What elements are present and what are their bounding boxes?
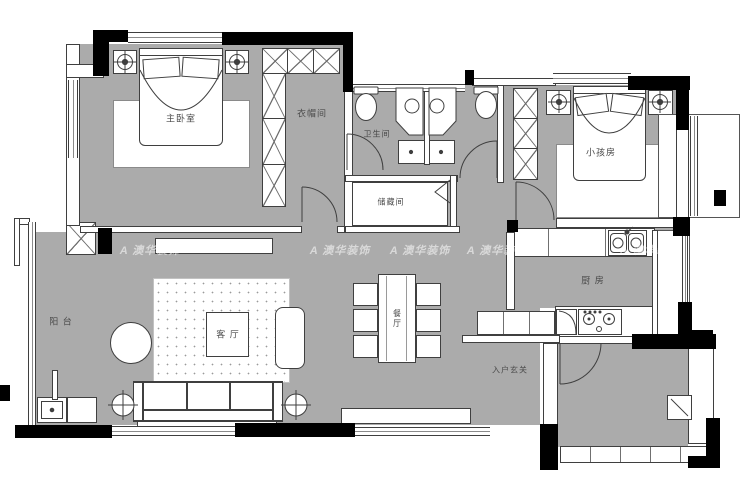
wall-black [685, 330, 713, 341]
wall [80, 226, 302, 233]
nightstand [113, 50, 137, 74]
room-label-cloakroom: 衣帽间 [297, 107, 327, 120]
window [553, 73, 631, 84]
room-label-dining: 餐厅 [392, 309, 403, 329]
wall [424, 85, 430, 165]
platform-window [690, 116, 698, 216]
wall-black [465, 70, 474, 85]
wardrobe-cell [287, 48, 314, 74]
nightstand [225, 50, 249, 74]
wall-black [714, 190, 726, 206]
sofa-cushion [230, 382, 273, 410]
window [352, 84, 465, 92]
room-label-bathroom: 卫生间 [364, 129, 391, 140]
wall [506, 232, 515, 310]
wall [462, 335, 560, 343]
wardrobe-cell [262, 73, 286, 119]
bed-headboard [139, 48, 223, 56]
table-line [386, 276, 387, 361]
cabinet-divider [529, 312, 530, 334]
table-line [406, 276, 407, 361]
cabinet-divider [680, 447, 681, 462]
corner-cabinet [556, 309, 577, 335]
dining-chair [416, 309, 441, 332]
wall [543, 343, 558, 428]
balcony-outer-wall [28, 222, 36, 428]
wall [472, 78, 556, 86]
wall-black [0, 385, 10, 401]
dining-chair [353, 283, 378, 306]
wardrobe-cell [313, 48, 340, 74]
floor-plan: 主卧室 衣帽间 卫生间 储藏间 小孩房 厨 房 餐厅 客 厅 阳 台 入户玄关 … [0, 0, 750, 500]
sofa-cushion [143, 382, 187, 410]
wardrobe-cell [513, 148, 538, 180]
wall [14, 218, 20, 266]
wall-black [93, 30, 128, 42]
window [68, 80, 78, 158]
window [128, 32, 222, 43]
dining-chair [416, 283, 441, 306]
counter-divider [605, 229, 606, 256]
sofa-cushion [187, 382, 230, 410]
shower-tray [428, 140, 455, 164]
room-label-storage: 储藏间 [378, 197, 405, 208]
window [355, 427, 490, 436]
hall-cabinet-row [477, 311, 555, 335]
wall-black [98, 228, 112, 254]
dining-chair [353, 335, 378, 358]
room-label-entry: 入户玄关 [492, 365, 528, 376]
wall-black [15, 425, 112, 438]
armchair [275, 307, 305, 369]
wall-black [688, 456, 720, 468]
sofa-back [143, 410, 273, 421]
cabinet-divider [650, 447, 651, 462]
room-label-master-bedroom: 主卧室 [166, 112, 196, 125]
wall [497, 85, 504, 183]
pillow [181, 57, 219, 80]
wardrobe-cell [262, 118, 286, 165]
wall [345, 226, 460, 233]
dining-chair [353, 309, 378, 332]
balcony-door-frame [52, 370, 58, 400]
counter-divider [548, 229, 549, 256]
window [110, 426, 235, 436]
wall-black [507, 220, 518, 232]
wall-black [673, 217, 690, 236]
wardrobe-cell [513, 118, 538, 149]
wall-black [628, 76, 690, 90]
wall-black [343, 44, 353, 92]
cabinet-divider [503, 312, 504, 334]
wall-black [676, 90, 689, 130]
sofa-arm [273, 382, 283, 421]
wardrobe-cell [262, 48, 288, 74]
window-seat [341, 408, 471, 424]
room-label-balcony: 阳 台 [49, 315, 73, 328]
pillow [142, 57, 180, 80]
nightstand [648, 90, 673, 115]
wall [556, 218, 676, 228]
wall-black [235, 423, 355, 437]
sink-basin [628, 233, 644, 253]
room-label-living: 客 厅 [216, 328, 240, 341]
wall [652, 230, 658, 337]
washing-machine-drum [41, 401, 63, 419]
sofa-arm [133, 382, 143, 421]
wall [345, 175, 458, 182]
wardrobe-cell [513, 88, 538, 119]
wall-black [222, 32, 353, 45]
gas-stove [578, 309, 622, 335]
wall-black [540, 424, 558, 470]
wall [344, 90, 353, 232]
shower-tray [398, 140, 425, 164]
wardrobe-cell [262, 164, 286, 207]
nightstand [546, 90, 571, 115]
cabinet-divider [620, 447, 621, 462]
shoe-cabinet [667, 395, 692, 420]
tv-console [155, 238, 273, 254]
side-platform [658, 114, 740, 218]
room-label-kids-room: 小孩房 [586, 146, 616, 159]
wall [450, 175, 457, 233]
side-table-round [110, 322, 152, 364]
room-label-kitchen: 厨 房 [581, 274, 605, 287]
balcony-cabinet-box [67, 397, 97, 423]
cabinet-divider [590, 447, 591, 462]
dining-chair [416, 335, 441, 358]
sink-basin [610, 233, 627, 253]
